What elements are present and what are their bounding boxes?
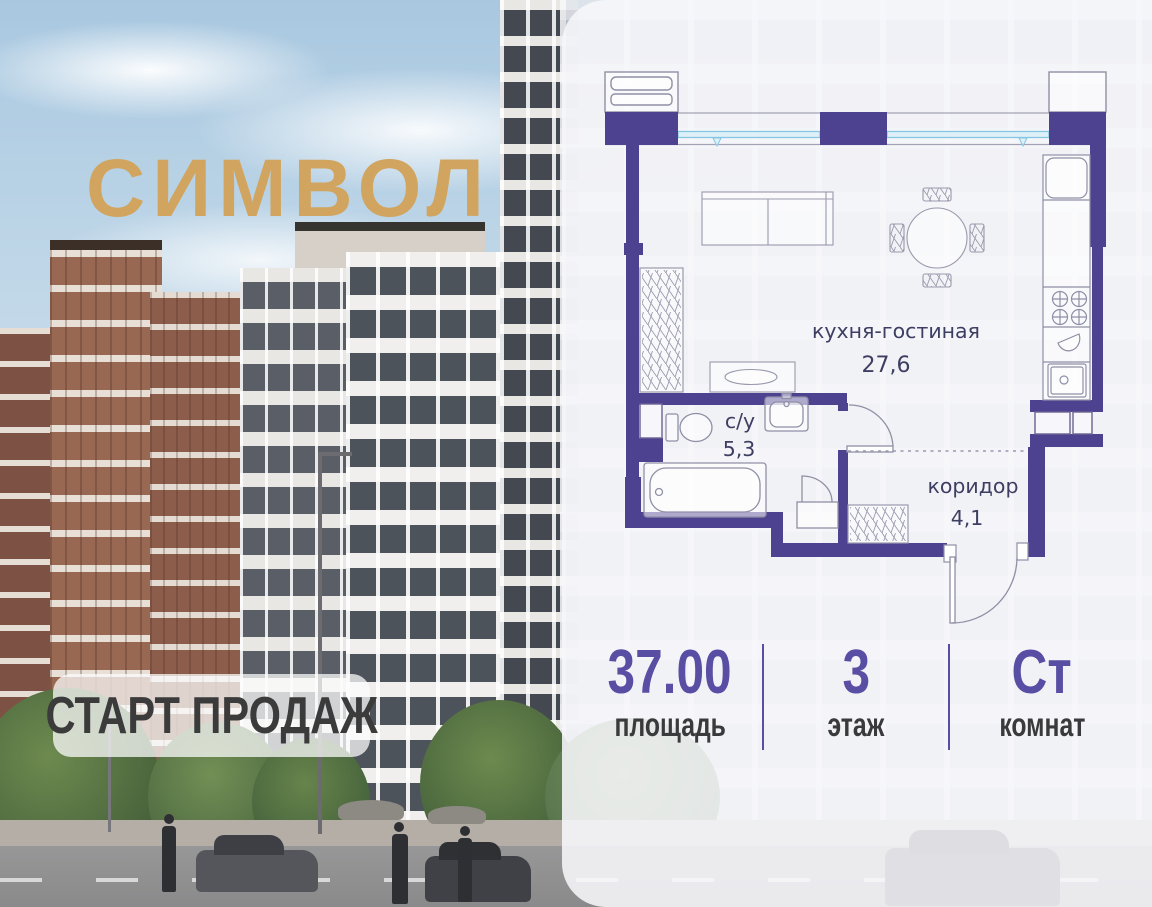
kitchen-counter: [1043, 155, 1090, 400]
stat-area: 37.00 площадь: [578, 644, 762, 750]
washbasin: [765, 394, 808, 432]
apartment-stats: 37.00 площадь 3 этаж Ст комнат: [578, 644, 1134, 750]
coat-rack: [848, 505, 908, 543]
stat-floor-label: этаж: [828, 708, 885, 741]
room-label-bathroom: с/у: [725, 409, 755, 433]
listing-card[interactable]: СИМВОЛ СТАРТ ПРОДАЖ: [0, 0, 1152, 907]
room-label-kitchen: кухня-гостиная: [812, 319, 980, 343]
stat-area-label: площадь: [614, 708, 725, 741]
stat-rooms-label: комнат: [999, 708, 1085, 741]
room-area-bathroom: 5,3: [723, 437, 756, 461]
room-area-kitchen: 27,6: [862, 353, 911, 378]
stat-floor-value: 3: [842, 644, 870, 701]
entrance-door: [950, 557, 1017, 623]
stat-area-value: 37.00: [608, 644, 732, 701]
stat-floor: 3 этаж: [762, 644, 948, 750]
fridge: [1046, 158, 1087, 198]
dining-table: [890, 188, 984, 287]
stat-rooms: Ст комнат: [948, 644, 1134, 750]
sofa: [702, 192, 833, 245]
bath-cabinet: [797, 476, 838, 528]
bathtub: [644, 463, 766, 517]
living-furniture: [702, 188, 984, 392]
bathroom-door: [847, 405, 893, 452]
closet: [640, 268, 683, 392]
tv-console: [710, 362, 795, 392]
toilet: [666, 414, 712, 442]
stat-rooms-value: Ст: [1012, 644, 1072, 701]
room-area-corridor: 4,1: [951, 506, 984, 530]
ac-unit-boxes: [605, 72, 1106, 112]
floorplan: кухня-гостиная 27,6 с/у 5,3 коридор 4,1: [0, 0, 1152, 907]
room-label-corridor: коридор: [928, 474, 1019, 498]
door-jambs: [944, 543, 1028, 562]
washing-machine: [1048, 364, 1086, 397]
